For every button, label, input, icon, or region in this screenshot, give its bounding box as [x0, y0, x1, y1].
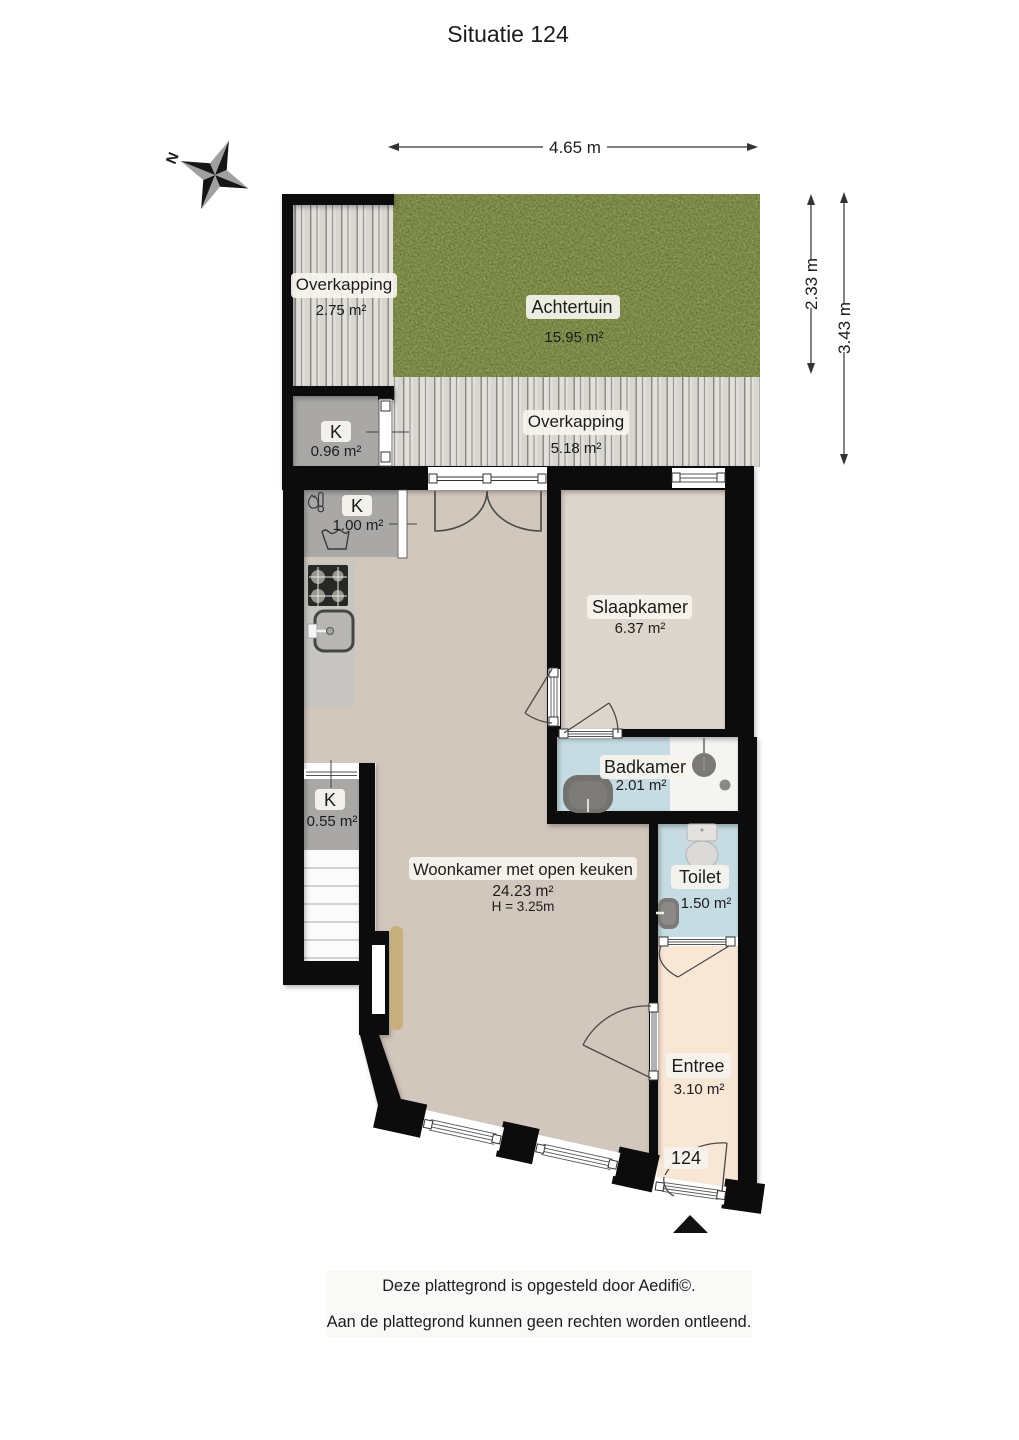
svg-text:4.65 m: 4.65 m — [549, 138, 601, 157]
svg-text:Badkamer: Badkamer — [604, 757, 686, 777]
svg-text:Entree: Entree — [671, 1056, 724, 1076]
svg-text:Slaapkamer: Slaapkamer — [592, 597, 688, 617]
svg-text:0.55 m²: 0.55 m² — [307, 813, 358, 830]
svg-text:Toilet: Toilet — [679, 867, 721, 887]
svg-text:Overkapping: Overkapping — [528, 412, 624, 431]
svg-text:1.00 m²: 1.00 m² — [333, 517, 384, 534]
svg-text:2.01 m²: 2.01 m² — [616, 777, 667, 794]
svg-text:5.18 m²: 5.18 m² — [551, 440, 602, 457]
svg-text:24.23 m²: 24.23 m² — [492, 883, 553, 900]
svg-text:K: K — [351, 496, 363, 516]
svg-text:K: K — [330, 422, 342, 442]
svg-text:15.95 m²: 15.95 m² — [544, 329, 603, 346]
svg-text:1.50 m²: 1.50 m² — [681, 895, 732, 912]
svg-text:124: 124 — [671, 1148, 701, 1168]
svg-text:2.75 m²: 2.75 m² — [316, 302, 367, 319]
svg-text:Overkapping: Overkapping — [296, 275, 392, 294]
svg-text:Situatie 124: Situatie 124 — [447, 21, 569, 47]
svg-text:Achtertuin: Achtertuin — [531, 297, 612, 317]
svg-text:6.37 m²: 6.37 m² — [615, 620, 666, 637]
svg-text:H = 3.25m: H = 3.25m — [492, 899, 555, 914]
svg-text:0.96 m²: 0.96 m² — [311, 443, 362, 460]
svg-text:3.10 m²: 3.10 m² — [674, 1081, 725, 1098]
svg-text:Woonkamer met open keuken: Woonkamer met open keuken — [413, 861, 633, 879]
svg-text:Aan de plattegrond kunnen geen: Aan de plattegrond kunnen geen rechten w… — [327, 1313, 752, 1331]
svg-text:K: K — [324, 790, 336, 810]
svg-text:2.33 m: 2.33 m — [802, 258, 821, 310]
svg-text:3.43 m: 3.43 m — [835, 302, 854, 354]
svg-text:Deze plattegrond is opgesteld: Deze plattegrond is opgesteld door Aedif… — [382, 1277, 695, 1295]
